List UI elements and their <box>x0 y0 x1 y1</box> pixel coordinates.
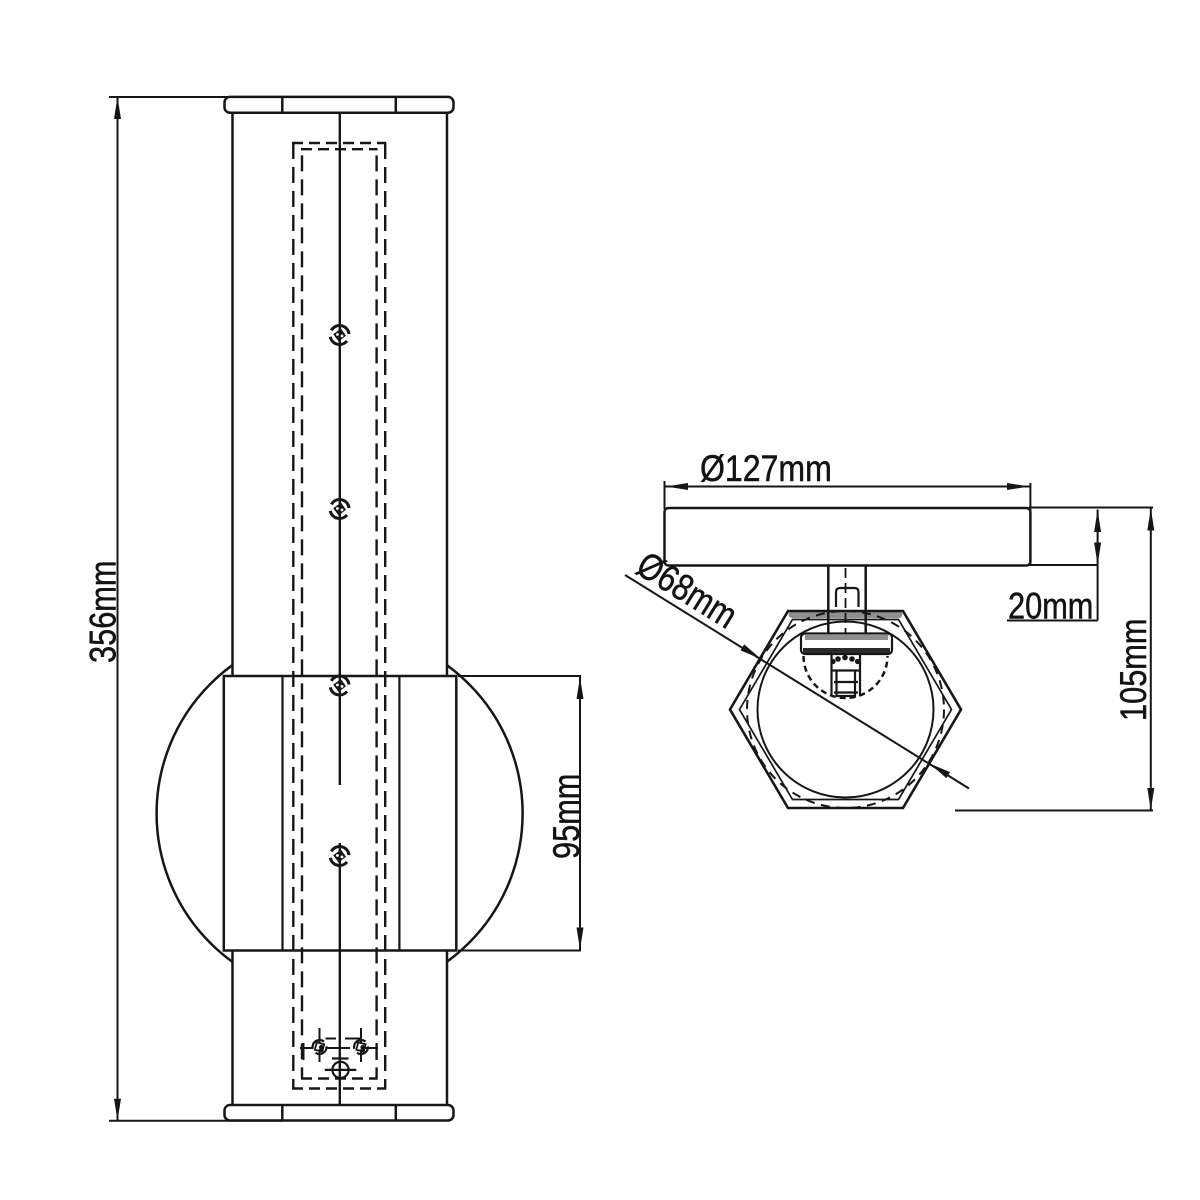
svg-text:20mm: 20mm <box>1008 586 1093 628</box>
svg-text:356mm: 356mm <box>83 560 125 663</box>
svg-text:Ø127mm: Ø127mm <box>700 448 832 490</box>
svg-text:95mm: 95mm <box>546 774 588 859</box>
svg-text:105mm: 105mm <box>1113 618 1155 721</box>
